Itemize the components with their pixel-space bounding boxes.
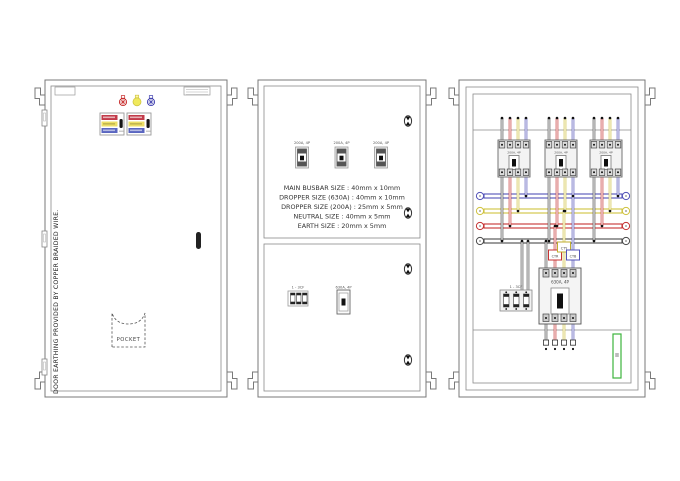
spec-line: EARTH SIZE : 20mm x 5mm [298,222,387,230]
pocket-label: POCKET [117,337,141,343]
mounting-bracket-icon [248,88,258,105]
inner-door-view-panel: 200A, 4P 200A, 4P 200A, 4P MAIN BUSBAR S… [248,80,436,397]
panel-ga-drawing: 200A, 4P [0,0,680,481]
incomer-label: 630A, 4P [335,286,352,290]
mounting-bracket-icon [426,372,436,389]
mounting-bracket-icon [35,88,45,105]
spec-line: MAIN BUSBAR SIZE : 40mm x 10mm [284,184,401,192]
feeder-mccb-3 [590,140,622,177]
quarter-turn-latch-icon[interactable] [404,208,411,218]
door-meter [100,113,124,135]
door-handle[interactable] [196,232,201,249]
door-meter [127,113,151,135]
spec-line: DROPPER SIZE (200A) : 25mm x 5mm [281,203,403,211]
quarter-turn-latch-icon[interactable] [404,116,411,126]
fuse-bank-label: 1 - 3CF [510,285,523,289]
hinge [42,231,47,247]
busbar-neutral [484,239,622,243]
feeder-switch-label: 200A, 4P [333,141,350,145]
mounting-bracket-icon [248,372,258,389]
hinge [42,359,47,375]
feeder-mccb-1 [498,140,530,177]
mounting-bracket-icon [449,88,459,105]
mounting-bracket-icon [426,88,436,105]
mounting-bracket-icon [227,372,237,389]
ct-blue-label: CTB [570,255,577,259]
drawing-canvas: 200A, 4P [0,0,680,481]
incomer-switch-cutout: 630A, 4P [335,286,352,315]
incomer-mccb: 630A, 4P [539,268,581,324]
door-earthing-note: DOOR EARTHING PROVIDED BY COPPER BRAIDED… [53,209,60,394]
earth-bar [613,334,621,378]
louver-vent [184,87,210,95]
mounting-bracket-icon [645,88,655,105]
nameplate [55,87,75,95]
mounting-bracket-icon [227,88,237,105]
mounting-bracket-icon [645,372,655,389]
feeder-switch-cutout [375,147,388,168]
fuse-label: 1 - 3CF [292,286,305,290]
feeder-switch-cutout [335,147,348,168]
feeder-switch-label: 200A, 4P [373,141,390,145]
inner-door-outline [258,80,426,397]
feeder-switch-cutout [296,147,309,168]
quarter-turn-latch-icon[interactable] [404,355,411,365]
quarter-turn-latch-icon[interactable] [404,264,411,274]
feeder-switch-label: 200A, 4P [294,141,311,145]
door-view-panel: DOOR EARTHING PROVIDED BY COPPER BRAIDED… [35,80,237,397]
incomer-rating-label: 630A, 4P [551,280,569,285]
busbar-spec-note: MAIN BUSBAR SIZE : 40mm x 10mm DROPPER S… [279,184,405,230]
ct-red-label: CTR [552,255,559,259]
spec-line: NEUTRAL SIZE : 40mm x 5mm [293,213,390,221]
equipment-view-panel: CTR CTY CTB 630A, 4P [449,80,655,397]
hinge [42,110,47,126]
feeder-mccb-2 [545,140,577,177]
spec-line: DROPPER SIZE (630A) : 40mm x 10mm [279,194,405,202]
mounting-bracket-icon [449,372,459,389]
